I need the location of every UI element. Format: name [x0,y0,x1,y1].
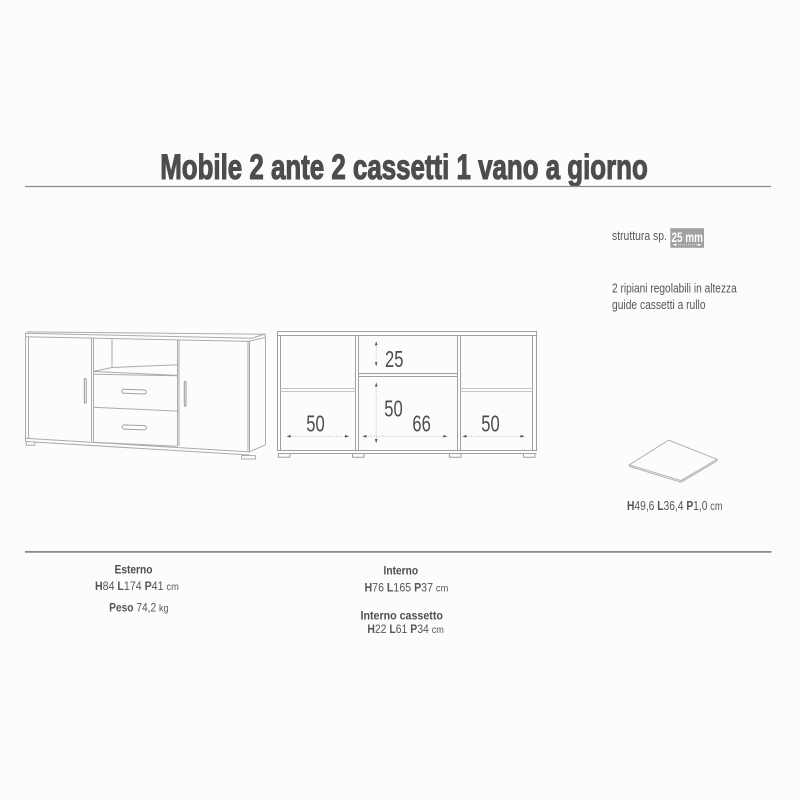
svg-text:Esterno: Esterno [115,564,153,577]
svg-text:H84 L174 P41 cm: H84 L174 P41 cm [95,581,179,594]
svg-text:50: 50 [306,412,324,437]
svg-text:66: 66 [412,412,430,437]
svg-text:Mobile 2 ante 2 cassetti 1 van: Mobile 2 ante 2 cassetti 1 vano a giorno [160,147,648,187]
svg-text:Interno cassetto: Interno cassetto [361,610,443,623]
svg-text:guide cassetti a rullo: guide cassetti a rullo [612,298,706,312]
svg-text:50: 50 [384,397,402,422]
svg-text:struttura sp.: struttura sp. [612,229,667,243]
svg-text:50: 50 [481,412,499,437]
svg-text:25 mm: 25 mm [671,229,703,245]
svg-text:H76 L165 P37 cm: H76 L165 P37 cm [364,582,448,595]
svg-text:Interno: Interno [384,565,419,578]
svg-text:H49,6 L36,4 P1,0 cm: H49,6 L36,4 P1,0 cm [627,499,722,513]
svg-text:H22 L61 P34 cm: H22 L61 P34 cm [367,623,444,636]
svg-text:2 ripiani regolabili in altezz: 2 ripiani regolabili in altezza [612,281,737,295]
svg-text:25: 25 [385,347,403,372]
svg-text:Peso 74,2 kg: Peso 74,2 kg [109,602,168,615]
